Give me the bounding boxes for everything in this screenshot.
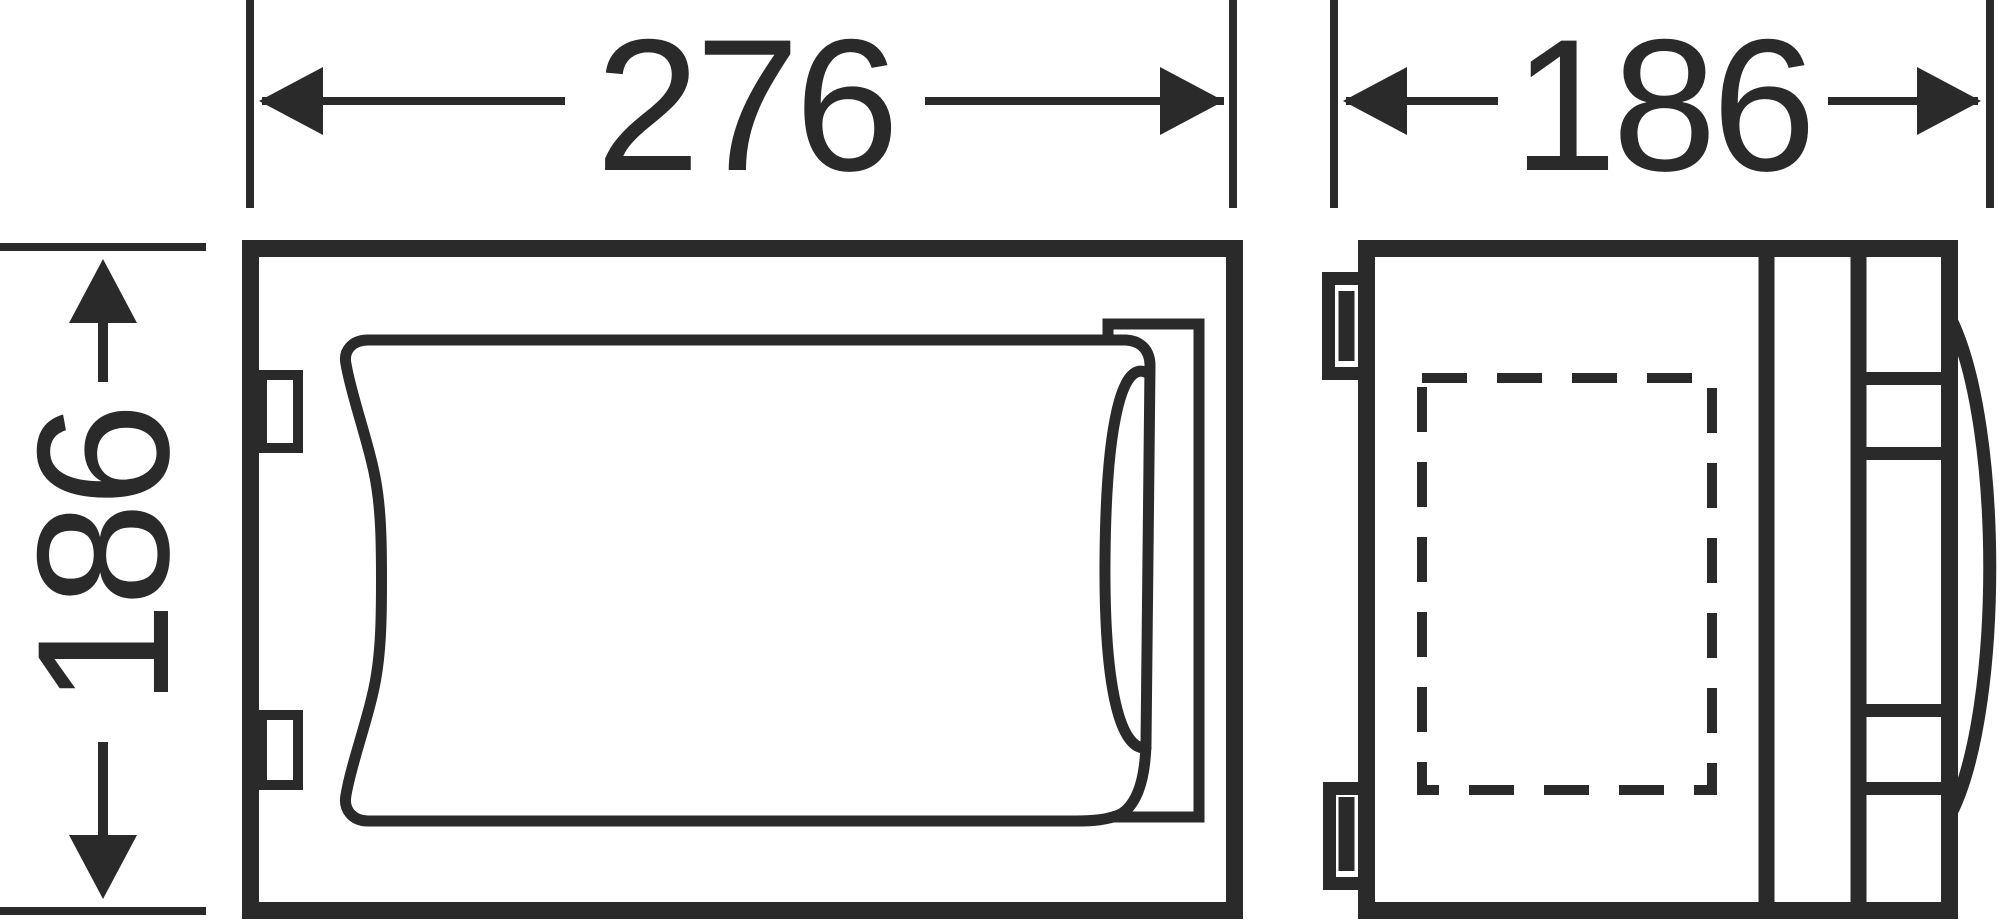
arrowhead-right-icon (1917, 67, 1981, 135)
front-view (251, 249, 1235, 911)
side-depth-label: 186 (1513, 0, 1812, 210)
front-width-label: 276 (596, 0, 895, 210)
bracket-slot-bottom (1343, 801, 1351, 867)
mounting-tab-top (262, 375, 298, 448)
cover-panel (345, 340, 1150, 821)
front-height-label: 186 (0, 408, 208, 707)
drawing-stage: 276 186 186 (0, 0, 2000, 920)
technical-drawing-svg: 276 186 186 (0, 0, 2000, 920)
side-view (1329, 249, 1990, 911)
arrowhead-right-icon (1160, 67, 1224, 135)
arrowhead-left-icon (259, 67, 323, 135)
dimension-side-depth: 186 (1334, 0, 1990, 210)
handle-arc (1953, 324, 1990, 809)
recess-dashed-outline (1422, 378, 1712, 790)
arrowhead-up-icon (69, 259, 137, 323)
arrowhead-left-icon (1343, 67, 1407, 135)
bracket-slot-top (1343, 295, 1351, 357)
mounting-tab-bottom (262, 715, 298, 785)
dimension-front-height: 186 (0, 247, 208, 911)
arrowhead-down-icon (69, 835, 137, 899)
dimension-front-width: 276 (250, 0, 1233, 210)
